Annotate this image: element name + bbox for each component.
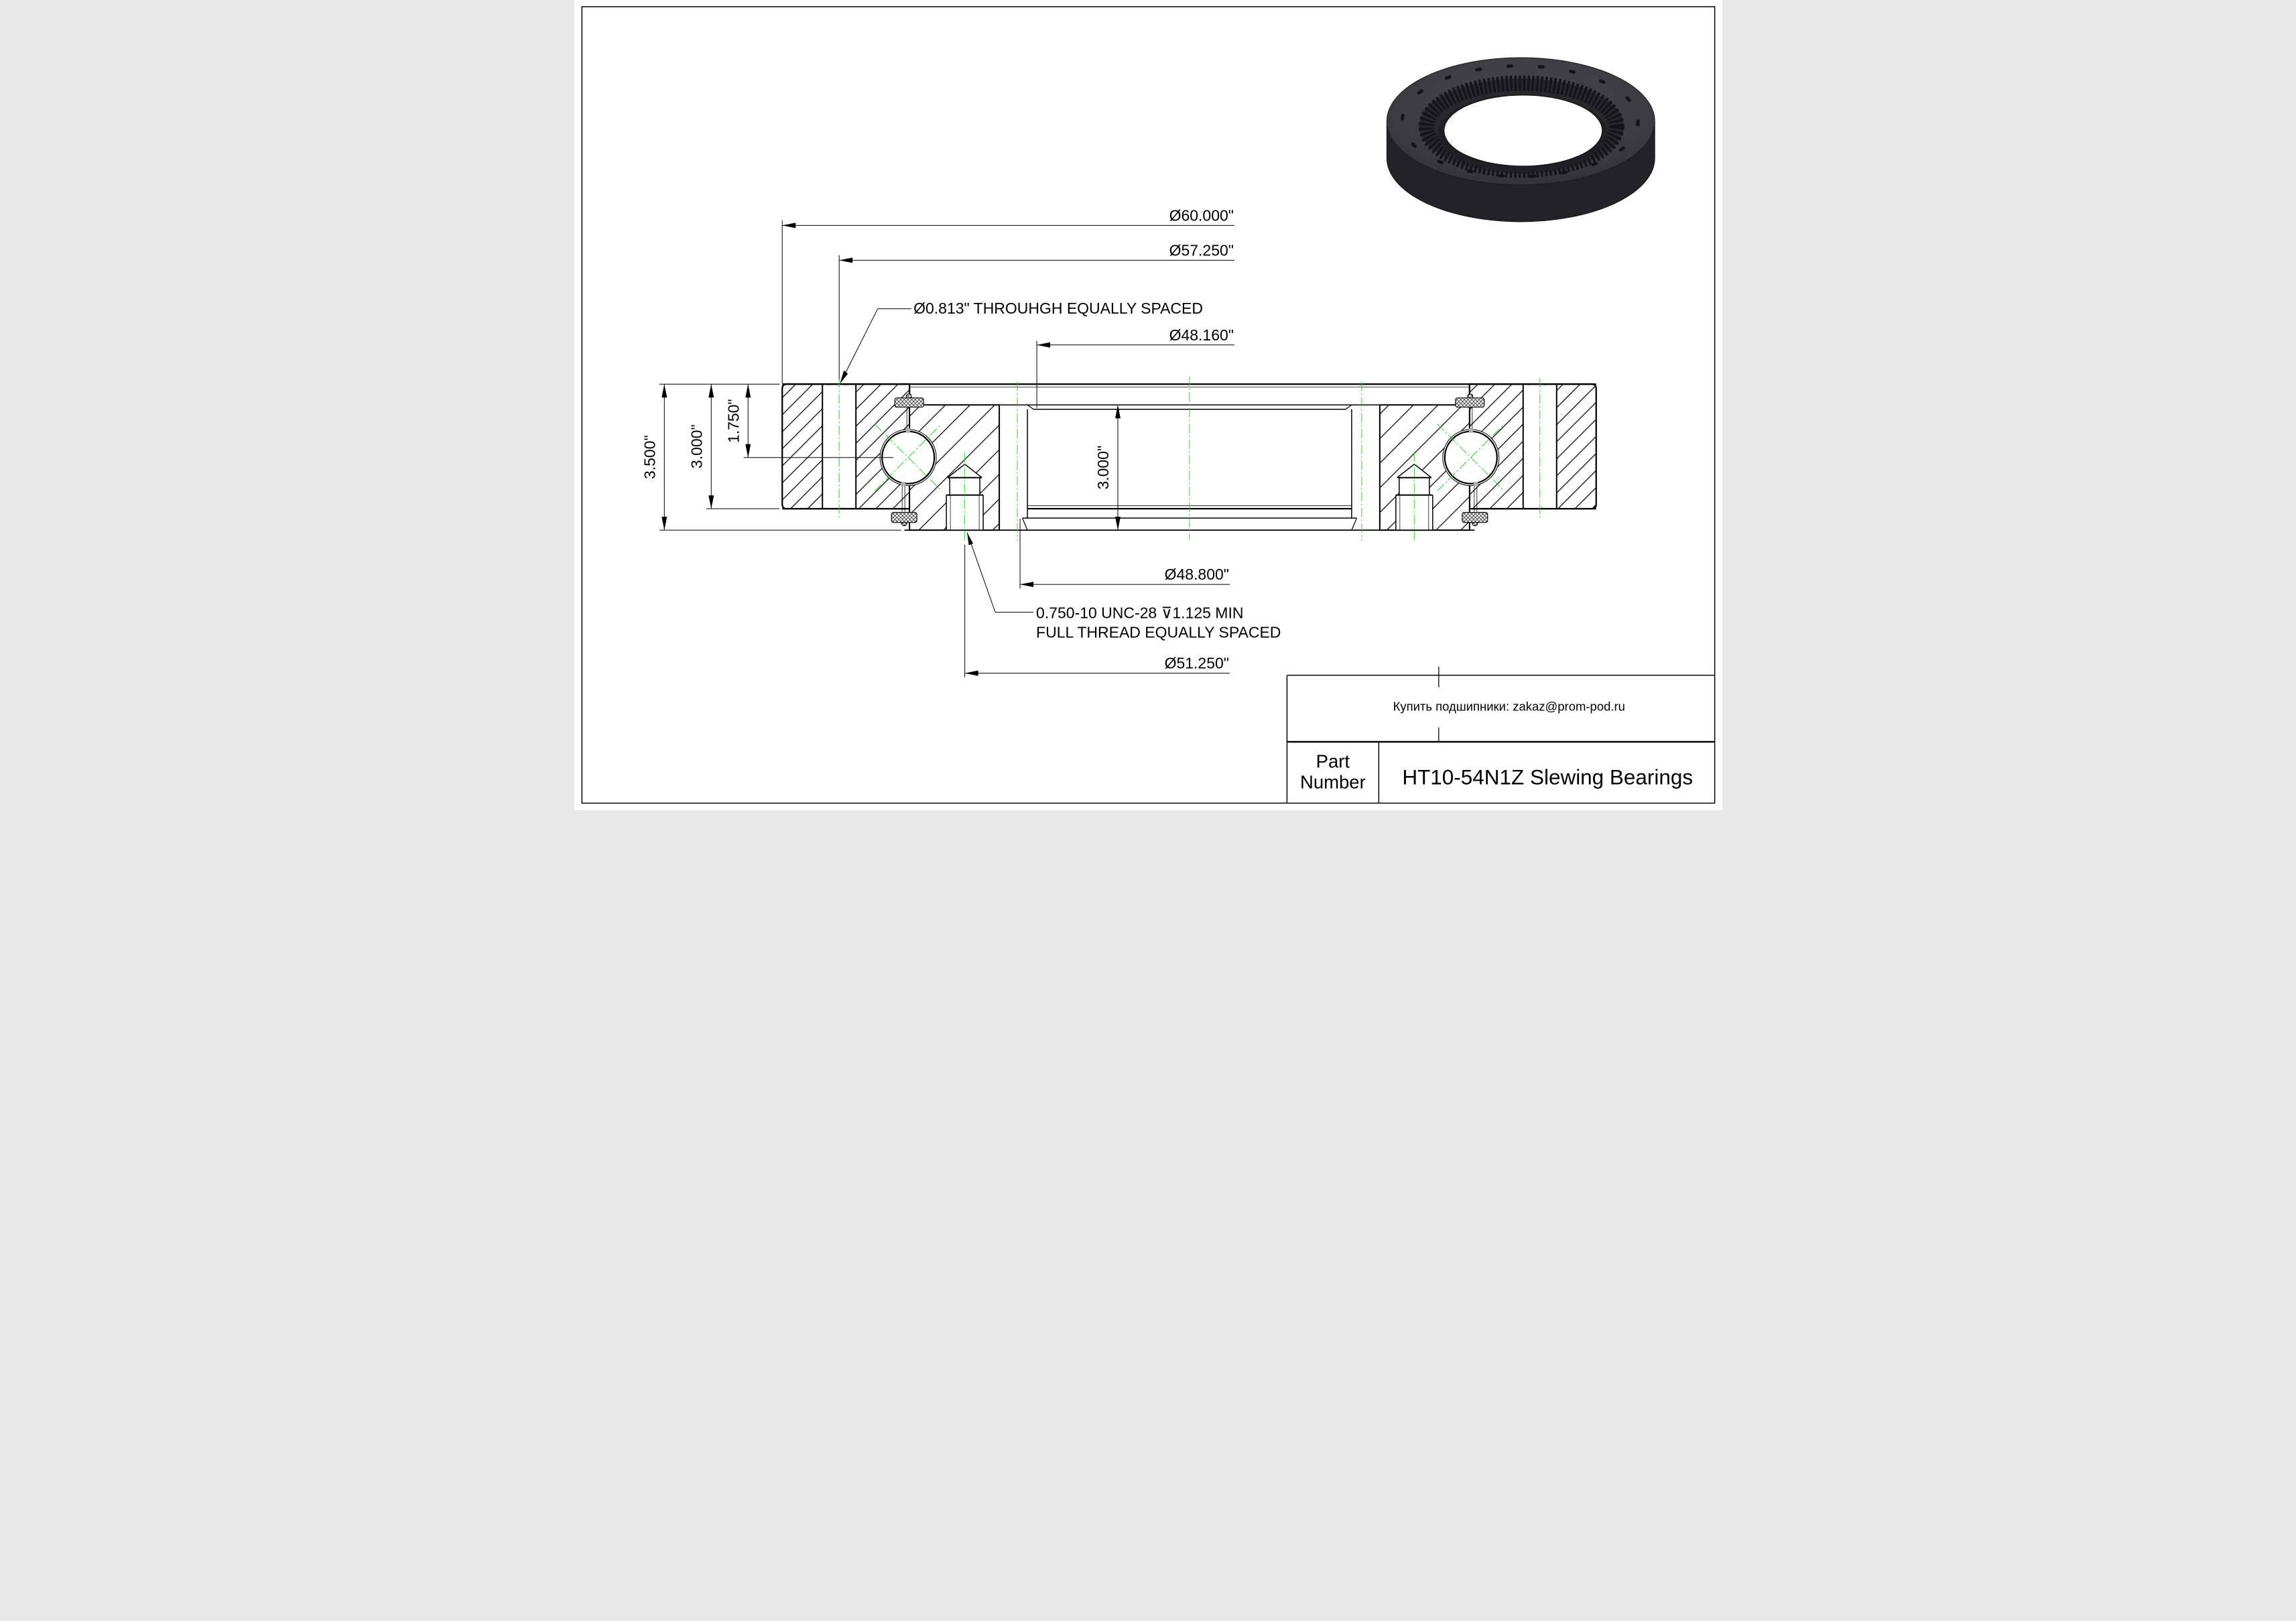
dim-outer-ring-height: 3.000": [688, 424, 705, 468]
part-number-value: HT10-54N1Z Slewing Bearings: [1402, 766, 1693, 789]
note-thread-line1: 0.750-10 UNC-28 ⊽1.125 MIN: [1036, 604, 1243, 622]
dim-bore-bottom: Ø48.800": [1164, 566, 1228, 583]
note-thread-line2: FULL THREAD EQUALLY SPACED: [1036, 624, 1281, 641]
dim-outer-diameter: Ø60.000": [1169, 206, 1233, 224]
dim-total-height: 3.500": [641, 435, 658, 479]
note-outer-hole: Ø0.813" THROUHGH EQUALLY SPACED: [913, 300, 1203, 317]
title-block: Купить подшипники: zakaz@prom-pod.ru Par…: [1287, 667, 1714, 803]
section-view: [782, 377, 1596, 543]
dim-inner-ring-height: 3.000": [1094, 446, 1112, 490]
part-label-line1: Part: [1316, 751, 1350, 772]
part-label-line2: Number: [1300, 772, 1366, 793]
dim-bore-top: Ø48.160": [1169, 326, 1233, 344]
contact-note: Купить подшипники: zakaz@prom-pod.ru: [1393, 700, 1624, 714]
drawing-sheet: Ø60.000" Ø57.250" Ø0.813" THROUHGH EQUAL…: [574, 0, 1722, 810]
dim-ball-center-depth: 1.750": [724, 399, 742, 443]
bearing-3d-image: [1387, 58, 1655, 222]
dim-outer-bolt-circle: Ø57.250": [1169, 241, 1233, 259]
dim-inner-bolt-circle: Ø51.250": [1164, 655, 1228, 672]
bearing-bore-hole: [1444, 95, 1602, 166]
